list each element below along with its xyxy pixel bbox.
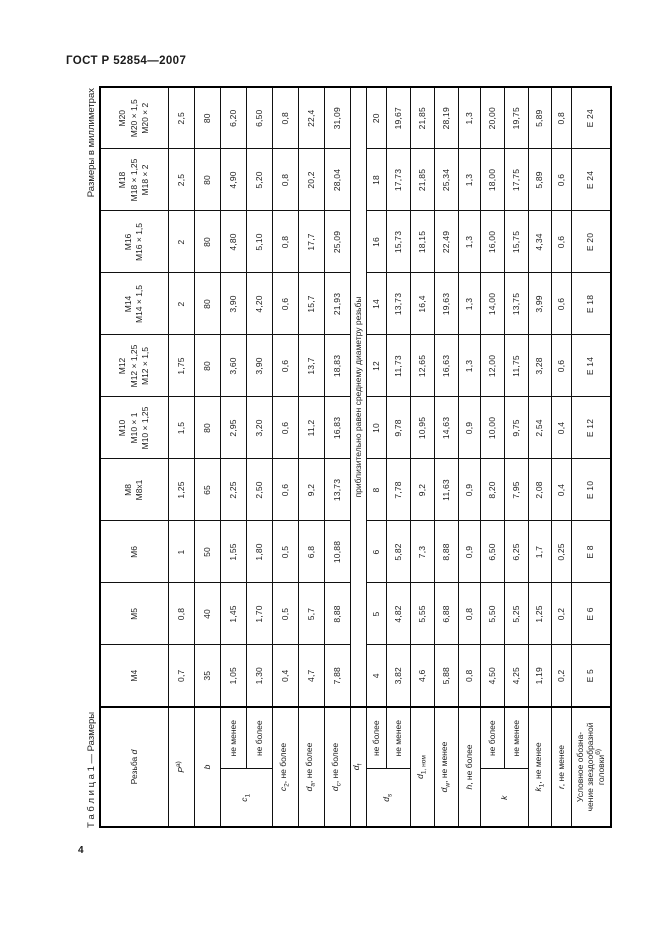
sym-dw: d [439, 788, 449, 793]
stub-thread: Резьба d [100, 707, 168, 827]
value-cell: 21,85 [410, 87, 434, 149]
sym-c1: c [239, 797, 249, 801]
stub-k1: k1, не менее [528, 707, 551, 827]
sym-da: d [304, 787, 314, 792]
value-cell: 5 [366, 583, 386, 645]
suffix-dc: , не более [330, 743, 340, 783]
value-cell: 17,7 [298, 211, 324, 273]
row-d1: d1, ном 4,65,557,39,210,9512,6516,418,15… [410, 87, 434, 827]
value-cell: 0,6 [272, 335, 298, 397]
value-cell: 18,15 [410, 211, 434, 273]
value-cell: 1,19 [528, 645, 551, 707]
stub-b: b [194, 707, 220, 827]
value-cell: 7,3 [410, 521, 434, 583]
row-c1-min: c1 не менее 1,051,451,552,252,953,603,90… [220, 87, 246, 827]
dimensions-table: Резьба d М4М5М6М8М8х1М10М10 × 1М10 × 1,2… [99, 86, 612, 828]
value-cell: 0,8 [458, 645, 480, 707]
value-cell: 7,78 [386, 459, 410, 521]
value-cell: 6,88 [434, 583, 458, 645]
value-cell: Е 6 [571, 583, 611, 645]
sublabel-ds-min: не менее [386, 707, 410, 769]
value-cell: 13,73 [386, 273, 410, 335]
value-cell: 50 [194, 521, 220, 583]
value-cell: 22,4 [298, 87, 324, 149]
value-cell: 1,30 [246, 645, 272, 707]
sublabel-k-max: не более [480, 707, 504, 769]
value-cell: 19,75 [504, 87, 528, 149]
stub-ds: ds [366, 769, 410, 827]
value-cell: 1,3 [458, 335, 480, 397]
value-cell: 1,7 [528, 521, 551, 583]
value-cell: 80 [194, 397, 220, 459]
stub-e-designation: Условное обозна- чение звездообразной го… [571, 707, 611, 827]
value-cell: 20 [366, 87, 386, 149]
value-cell: 18,83 [324, 335, 350, 397]
row-c2: c2, не более 0,40,50,50,60,60,60,60,80,8… [272, 87, 298, 827]
value-cell: 16,00 [480, 211, 504, 273]
value-cell: 25,09 [324, 211, 350, 273]
value-cell: 4,80 [220, 211, 246, 273]
value-cell: 10,00 [480, 397, 504, 459]
value-cell: 9,78 [386, 397, 410, 459]
sub-c2: 2 [284, 783, 291, 787]
row-c1-max: не более 1,301,701,802,503,203,904,205,1… [246, 87, 272, 827]
value-cell: 1,3 [458, 211, 480, 273]
value-cell: 0,9 [458, 459, 480, 521]
value-cell: 22,49 [434, 211, 458, 273]
value-cell: 3,82 [386, 645, 410, 707]
value-cell: 0,8 [168, 583, 194, 645]
value-cell: 11,73 [386, 335, 410, 397]
value-cell: 6,50 [246, 87, 272, 149]
sym-df: d [351, 766, 361, 771]
sym-dc: d [330, 786, 340, 791]
stub-thread-sym: d [129, 750, 139, 755]
value-cell: 12,00 [480, 335, 504, 397]
row-ds-min: не менее 3,824,825,827,789,7811,7313,731… [386, 87, 410, 827]
value-cell: 0,8 [272, 149, 298, 211]
sub-dc: c [336, 783, 343, 786]
value-cell: Е 12 [571, 397, 611, 459]
value-cell: 18 [366, 149, 386, 211]
sym-r: r [556, 786, 566, 789]
value-cell: 16,4 [410, 273, 434, 335]
value-cell: 11,63 [434, 459, 458, 521]
value-cell: 3,60 [220, 335, 246, 397]
value-cell: 0,5 [272, 521, 298, 583]
value-cell: 16,63 [434, 335, 458, 397]
value-cell: Е 20 [571, 211, 611, 273]
value-cell: 2,5 [168, 87, 194, 149]
rotated-table-block: Т а б л и ц а 1 — Размеры Размеры в милл… [81, 88, 612, 828]
value-cell: 2,54 [528, 397, 551, 459]
value-cell: 2 [168, 211, 194, 273]
value-cell: 5,55 [410, 583, 434, 645]
value-cell: 8,88 [434, 521, 458, 583]
value-cell: 0,4 [551, 397, 571, 459]
stub-c2: c2, не более [272, 707, 298, 827]
row-e-designation: Условное обозна- чение звездообразной го… [571, 87, 611, 827]
thread-header-cell: М16М16 × 1,5 [100, 211, 168, 273]
value-cell: 1,3 [458, 273, 480, 335]
value-cell: 5,89 [528, 87, 551, 149]
value-cell: 5,10 [246, 211, 272, 273]
row-dc: dc, не более 7,888,8810,8813,7316,8318,8… [324, 87, 350, 827]
value-cell: 0,6 [551, 273, 571, 335]
value-cell: 80 [194, 335, 220, 397]
thread-header-cell: М4 [100, 645, 168, 707]
value-cell: 19,63 [434, 273, 458, 335]
value-cell: 28,04 [324, 149, 350, 211]
value-cell: 1,55 [220, 521, 246, 583]
stub-r: r, не менее [551, 707, 571, 827]
value-cell: 21,93 [324, 273, 350, 335]
table-caption: Т а б л и ц а 1 — Размеры [86, 712, 97, 828]
row-k-max: k не более 4,505,506,508,2010,0012,0014,… [480, 87, 504, 827]
value-cell: 5,88 [434, 645, 458, 707]
value-cell: 1,70 [246, 583, 272, 645]
sym-ds: d [381, 797, 391, 802]
stub-h: h, не более [458, 707, 480, 827]
sub-k1: 1 [539, 784, 546, 788]
value-cell: Е 18 [571, 273, 611, 335]
value-cell: 18,00 [480, 149, 504, 211]
value-cell: 17,75 [504, 149, 528, 211]
value-cell: 6,25 [504, 521, 528, 583]
value-cell: 80 [194, 149, 220, 211]
value-cell: Е 14 [571, 335, 611, 397]
value-cell: 0,7 [168, 645, 194, 707]
stub-k: k [480, 769, 528, 827]
value-cell: 0,2 [551, 645, 571, 707]
value-cell: 10,95 [410, 397, 434, 459]
value-cell: 1,05 [220, 645, 246, 707]
row-thread-header: Резьба d М4М5М6М8М8х1М10М10 × 1М10 × 1,2… [100, 87, 168, 827]
value-cell: 13,7 [298, 335, 324, 397]
sym-d1: d [415, 774, 425, 779]
sublabel-ds-max: не более [366, 707, 386, 769]
value-cell: Е 24 [571, 87, 611, 149]
value-cell: 2,5 [168, 149, 194, 211]
thread-header-cell: М8М8х1 [100, 459, 168, 521]
page-number: 4 [78, 845, 84, 856]
value-cell: 10 [366, 397, 386, 459]
suffix-k1: , не менее [533, 742, 543, 783]
value-cell: 80 [194, 211, 220, 273]
stub-c1: c1 [220, 769, 272, 827]
value-cell: 14,63 [434, 397, 458, 459]
value-cell: 7,88 [324, 645, 350, 707]
value-cell: 12 [366, 335, 386, 397]
document-page: ГОСТ Р 52854—2007 Т а б л и ц а 1 — Разм… [0, 0, 661, 936]
value-cell: 21,85 [410, 149, 434, 211]
stub-thread-text: Резьба [129, 754, 139, 784]
sym-b: b [202, 765, 212, 770]
value-cell: 1,75 [168, 335, 194, 397]
value-cell: 13,75 [504, 273, 528, 335]
value-cell: 15,7 [298, 273, 324, 335]
value-cell: 2 [168, 273, 194, 335]
value-cell: 1,3 [458, 87, 480, 149]
sym-h: h [464, 785, 474, 790]
value-cell: 4,25 [504, 645, 528, 707]
value-cell: 9,2 [410, 459, 434, 521]
stub-da: da, не более [298, 707, 324, 827]
value-cell: 6 [366, 521, 386, 583]
value-cell: 11,75 [504, 335, 528, 397]
value-cell: 5,89 [528, 149, 551, 211]
suffix-dw: , не менее [439, 742, 449, 783]
value-cell: 20,00 [480, 87, 504, 149]
value-cell: 14,00 [480, 273, 504, 335]
value-cell: 0,9 [458, 521, 480, 583]
value-cell: 3,90 [220, 273, 246, 335]
sublabel-k-min: не менее [504, 707, 528, 769]
e-label-line1: Условное обозна- [575, 708, 586, 826]
sym-k1: k [533, 787, 543, 791]
value-cell: 65 [194, 459, 220, 521]
row-ds-max: ds не более 4568101214161820 [366, 87, 386, 827]
value-cell: 8 [366, 459, 386, 521]
value-cell: 4,34 [528, 211, 551, 273]
value-cell: 3,20 [246, 397, 272, 459]
value-cell: 0,4 [551, 459, 571, 521]
value-cell: 4,20 [246, 273, 272, 335]
value-cell: 4,90 [220, 149, 246, 211]
row-P: Pа) 0,70,811,251,51,75222,52,5 [168, 87, 194, 827]
value-cell: 4,82 [386, 583, 410, 645]
value-cell: 0,2 [551, 583, 571, 645]
e-label-line2: чение звездообразной [585, 708, 596, 826]
value-cell: 1,80 [246, 521, 272, 583]
value-cell: 5,25 [504, 583, 528, 645]
thread-header-cell: М18М18 × 1,25М18 × 2 [100, 149, 168, 211]
row-b: b 35405065808080808080 [194, 87, 220, 827]
row-dw: dw, не менее 5,886,888,8811,6314,6316,63… [434, 87, 458, 827]
value-cell: 80 [194, 87, 220, 149]
row-k-min: не менее 4,255,256,257,959,7511,7513,751… [504, 87, 528, 827]
thread-header-cell: М20М20 × 1,5М20 × 2 [100, 87, 168, 149]
value-cell: 17,73 [386, 149, 410, 211]
value-cell: 80 [194, 273, 220, 335]
value-cell: 11,2 [298, 397, 324, 459]
stub-df: df [350, 707, 366, 827]
value-cell: 16 [366, 211, 386, 273]
value-cell: 0,8 [272, 211, 298, 273]
value-cell: 6,50 [480, 521, 504, 583]
value-cell: 1,3 [458, 149, 480, 211]
sub-d1: 1, ном [421, 755, 428, 774]
thread-header-cell: М14М14 × 1,5 [100, 273, 168, 335]
value-cell: 6,20 [220, 87, 246, 149]
value-cell: 0,5 [272, 583, 298, 645]
value-cell: 15,73 [386, 211, 410, 273]
value-cell: 3,99 [528, 273, 551, 335]
row-k1: k1, не менее 1,191,251,72,082,543,283,99… [528, 87, 551, 827]
thread-header-cell: М5 [100, 583, 168, 645]
value-cell: 0,6 [551, 211, 571, 273]
value-cell: 16,83 [324, 397, 350, 459]
sym-c2: c [278, 787, 288, 791]
stub-P: Pа) [168, 707, 194, 827]
thread-header-cell: М12М12 × 1,25М12 × 1,5 [100, 335, 168, 397]
e-label-line3-text: головки [596, 755, 606, 785]
value-cell: 3,28 [528, 335, 551, 397]
value-cell: 4 [366, 645, 386, 707]
value-cell: 28,19 [434, 87, 458, 149]
value-cell: 2,08 [528, 459, 551, 521]
value-cell: 20,2 [298, 149, 324, 211]
sup-e: б) [595, 749, 602, 755]
value-cell: 1 [168, 521, 194, 583]
suffix-c2: , не более [278, 743, 288, 783]
value-cell: 10,88 [324, 521, 350, 583]
units-caption: Размеры в миллиметрах [86, 88, 97, 197]
row-da: da, не более 4,75,76,89,211,213,715,717,… [298, 87, 324, 827]
stub-dw: dw, не менее [434, 707, 458, 827]
stub-dc: dc, не более [324, 707, 350, 827]
value-cell: 1,25 [528, 583, 551, 645]
value-cell: 25,34 [434, 149, 458, 211]
value-cell: Е 5 [571, 645, 611, 707]
value-cell: 4,50 [480, 645, 504, 707]
thread-header-cell: М6 [100, 521, 168, 583]
sublabel-c1-min: не менее [220, 707, 246, 769]
value-cell: 0,8 [551, 87, 571, 149]
row-h: h, не более 0,80,80,90,90,91,31,31,31,31… [458, 87, 480, 827]
sub-ds: s [387, 794, 394, 797]
value-cell: 5,20 [246, 149, 272, 211]
value-cell: 19,67 [386, 87, 410, 149]
stub-d1: d1, ном [410, 707, 434, 827]
value-cell: 2,25 [220, 459, 246, 521]
value-cell: 7,95 [504, 459, 528, 521]
value-cell: 0,9 [458, 397, 480, 459]
value-cell: 5,82 [386, 521, 410, 583]
value-cell: Е 10 [571, 459, 611, 521]
value-cell: 5,50 [480, 583, 504, 645]
value-cell: 0,6 [272, 459, 298, 521]
value-cell: 9,2 [298, 459, 324, 521]
sym-k: k [499, 796, 509, 800]
value-cell: 8,20 [480, 459, 504, 521]
df-note-cell: приблизительно равен среднему диаметру р… [350, 87, 366, 707]
suffix-da: , не более [304, 743, 314, 783]
value-cell: 0,8 [272, 87, 298, 149]
value-cell: 0,6 [551, 335, 571, 397]
value-cell: 0,25 [551, 521, 571, 583]
value-cell: 4,6 [410, 645, 434, 707]
value-cell: 15,75 [504, 211, 528, 273]
sub-dw: w [445, 783, 452, 788]
sup-P: а) [175, 761, 182, 767]
value-cell: 9,75 [504, 397, 528, 459]
value-cell: 2,95 [220, 397, 246, 459]
value-cell: 1,25 [168, 459, 194, 521]
value-cell: 6,8 [298, 521, 324, 583]
document-header: ГОСТ Р 52854—2007 [66, 55, 186, 67]
e-label-line3: головкиб) [596, 708, 607, 826]
value-cell: 14 [366, 273, 386, 335]
value-cell: 4,7 [298, 645, 324, 707]
value-cell: 0,4 [272, 645, 298, 707]
value-cell: Е 8 [571, 521, 611, 583]
suffix-h: , не более [464, 744, 474, 784]
sub-c1: 1 [245, 794, 252, 798]
value-cell: 8,88 [324, 583, 350, 645]
suffix-r: , не менее [556, 745, 566, 786]
value-cell: 13,73 [324, 459, 350, 521]
value-cell: 0,8 [458, 583, 480, 645]
value-cell: 0,6 [551, 149, 571, 211]
value-cell: Е 24 [571, 149, 611, 211]
sub-df: f [357, 764, 364, 766]
value-cell: 40 [194, 583, 220, 645]
value-cell: 12,65 [410, 335, 434, 397]
row-df-note: df приблизительно равен среднему диаметр… [350, 87, 366, 827]
sub-da: a [310, 783, 317, 787]
value-cell: 1,5 [168, 397, 194, 459]
sublabel-c1-max: не более [246, 707, 272, 769]
row-r: r, не менее 0,20,20,250,40,40,60,60,60,6… [551, 87, 571, 827]
value-cell: 5,7 [298, 583, 324, 645]
sym-P: P [176, 767, 186, 773]
value-cell: 35 [194, 645, 220, 707]
value-cell: 1,45 [220, 583, 246, 645]
value-cell: 0,6 [272, 273, 298, 335]
value-cell: 31,09 [324, 87, 350, 149]
thread-header-cell: М10М10 × 1М10 × 1,25 [100, 397, 168, 459]
value-cell: 2,50 [246, 459, 272, 521]
caption-bar: Т а б л и ц а 1 — Размеры Размеры в милл… [81, 88, 99, 828]
value-cell: 3,90 [246, 335, 272, 397]
value-cell: 0,6 [272, 397, 298, 459]
